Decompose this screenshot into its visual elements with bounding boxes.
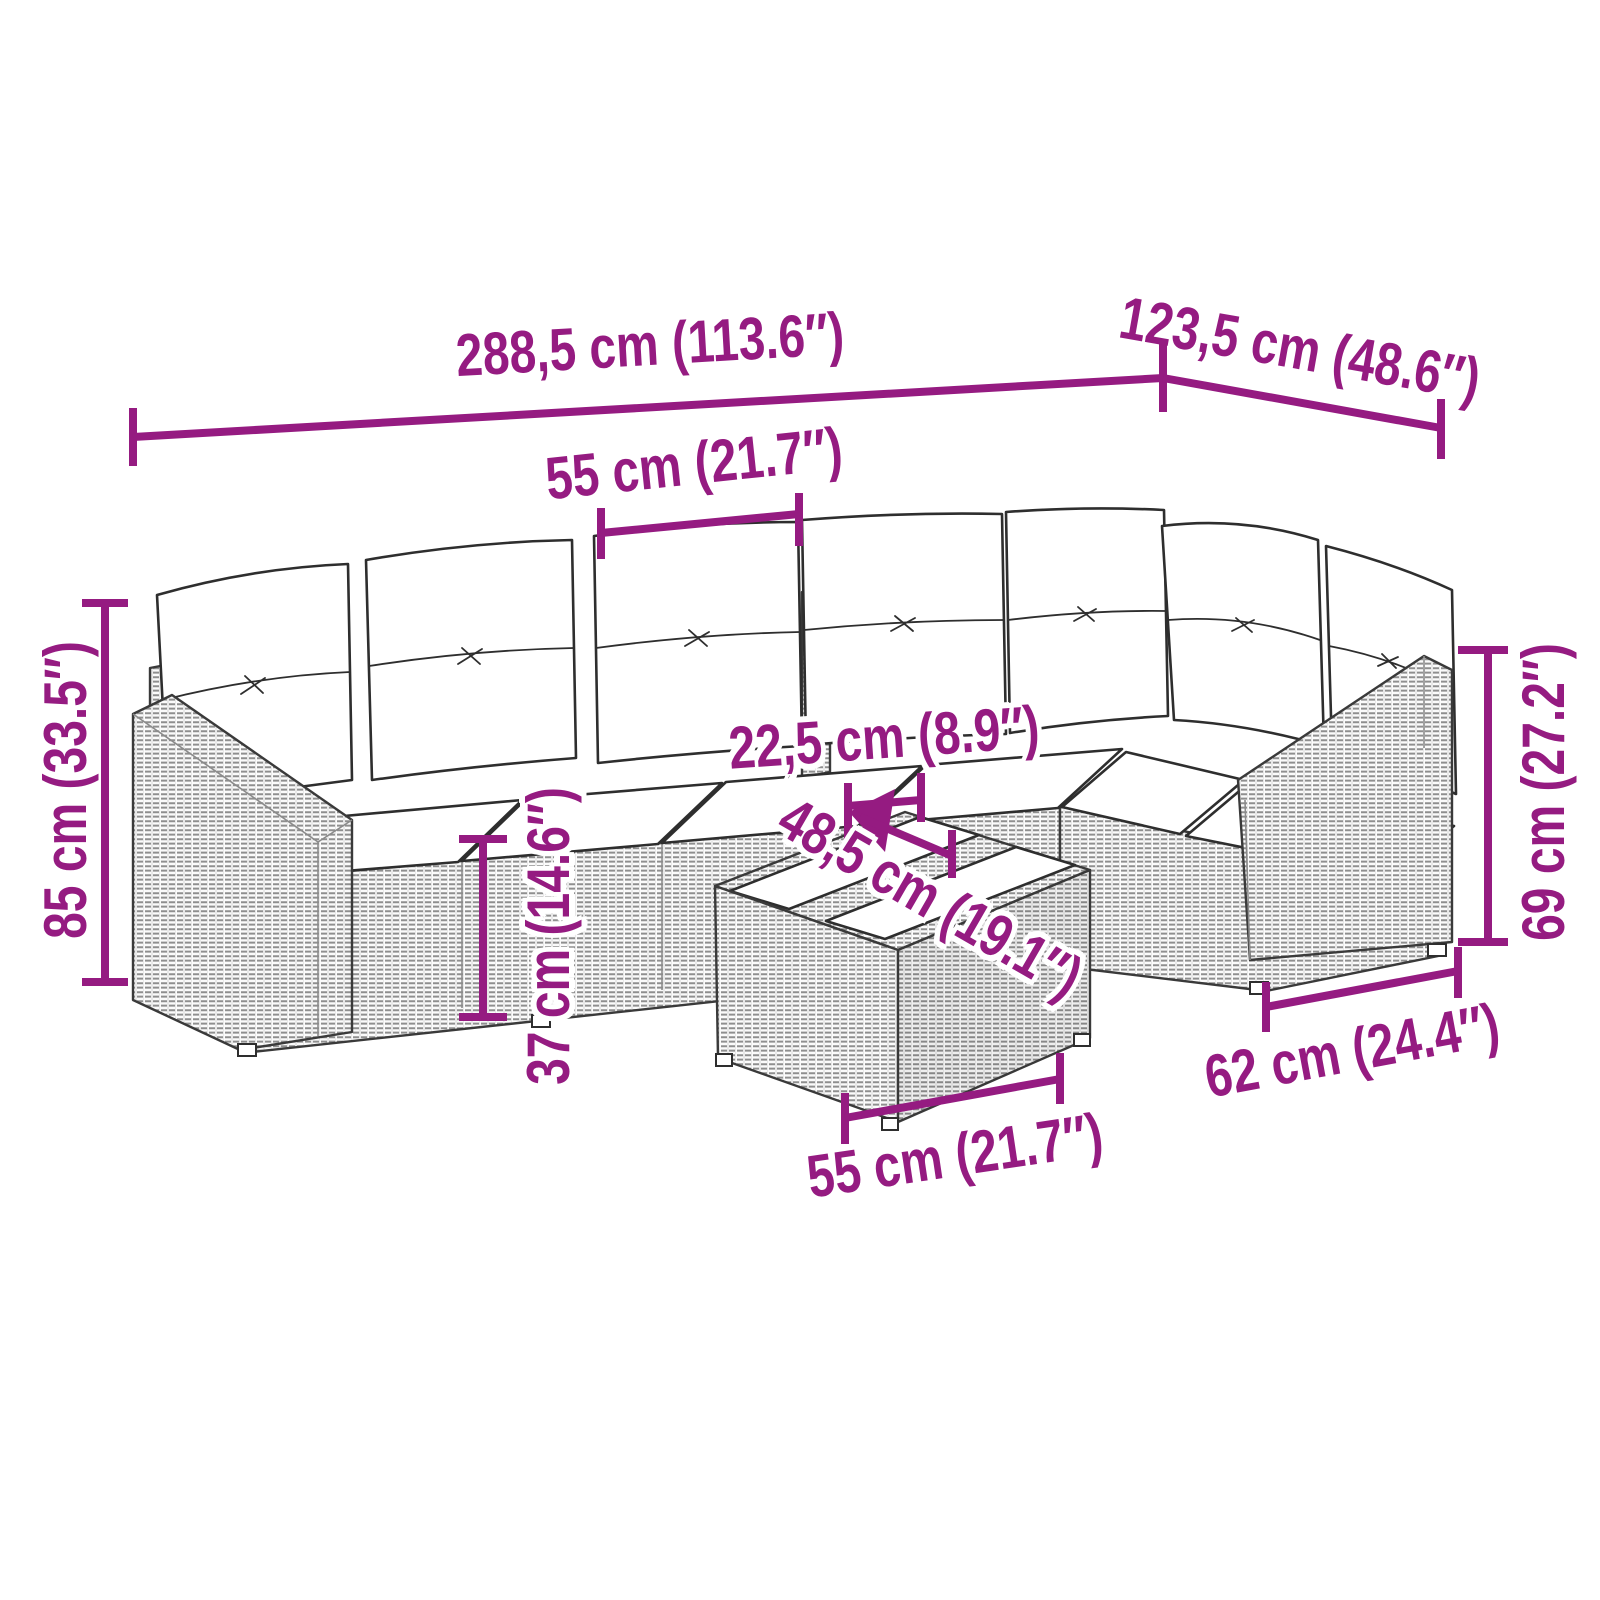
diagram-canvas: 288,5 cm (113.6″) 123,5 cm (48.6″) 55 cm… [0,0,1600,1600]
dim-label-overall-height: 85 cm (33.5″) [36,641,96,939]
dim-label-back-height: 69 cm (27.2″) [1514,643,1574,941]
dim-label-seat-height: 37 cm (14.6″) [519,787,579,1085]
dim-back-height-line [1458,650,1508,942]
dim-seat-height-line [459,839,507,1017]
